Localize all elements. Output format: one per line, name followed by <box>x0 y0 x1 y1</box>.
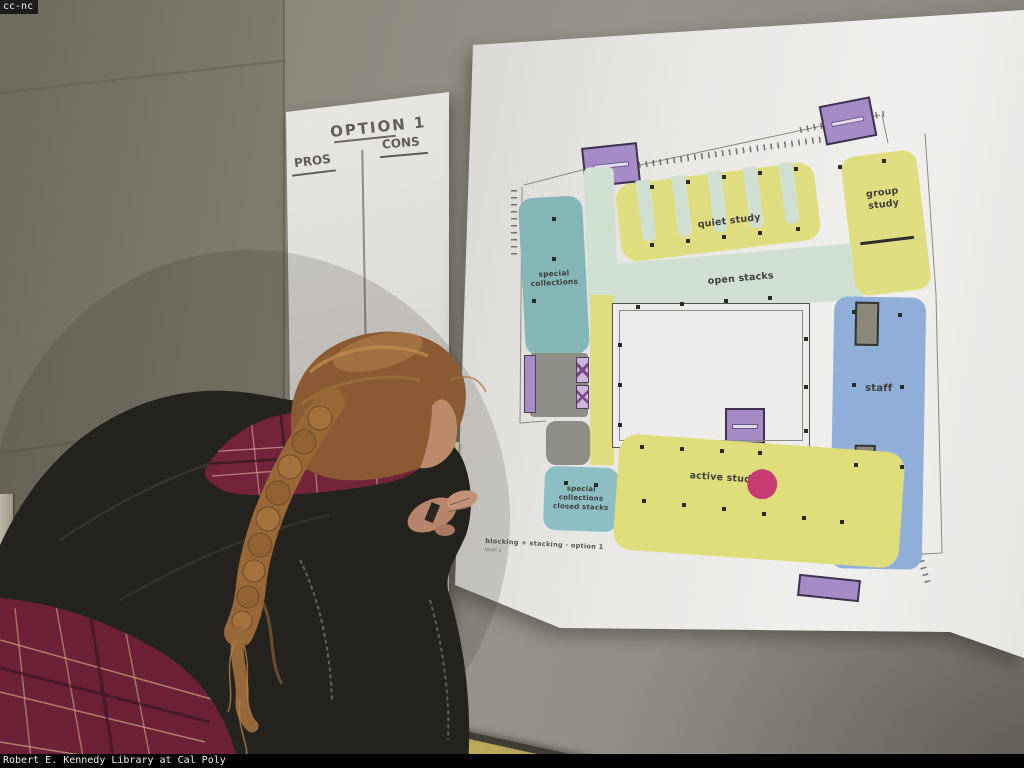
photo-credit: Robert E. Kennedy Library at Cal Poly <box>0 754 1024 768</box>
license-badge: cc-nc <box>0 0 38 14</box>
person <box>0 0 1024 768</box>
thumb <box>435 524 455 536</box>
scene: OPTION 1 PROS CONS <box>0 0 1024 768</box>
